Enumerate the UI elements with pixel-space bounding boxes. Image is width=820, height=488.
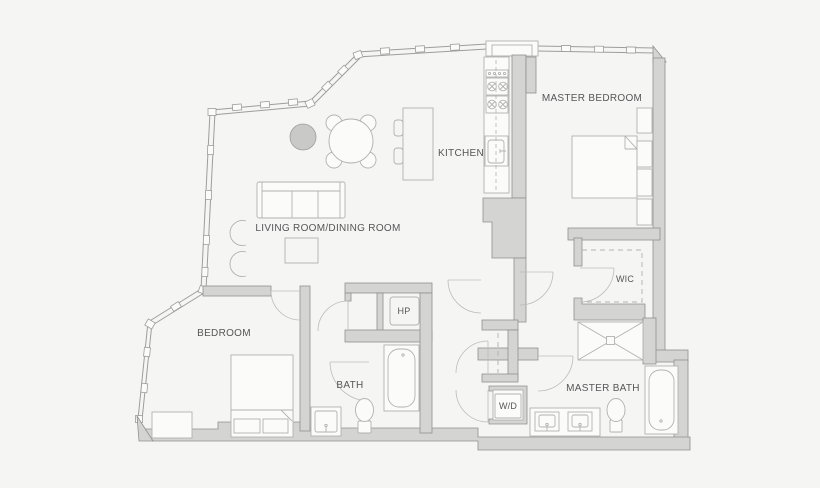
window-mullion [171, 302, 182, 312]
stool [394, 120, 403, 136]
nightstand [637, 199, 652, 225]
window-mullion [141, 383, 148, 393]
room-label-master-bath: MASTER BATH [566, 383, 640, 394]
room-label-kitchen: KITCHEN [438, 148, 484, 159]
coffee-table [285, 238, 318, 263]
room-label-bedroom: BEDROOM [197, 328, 251, 339]
wall-bedroom-top [203, 286, 271, 296]
master-bed [572, 136, 637, 198]
entry-recess [486, 41, 538, 56]
kitchen-fixtures [394, 57, 509, 193]
entry-door [486, 41, 538, 56]
shower [578, 322, 643, 360]
floor-plan: MASTER BEDROOM KITCHEN LIVING ROOM/DININ… [0, 0, 820, 488]
wall-linen-bottom [482, 374, 518, 382]
living-dining-furniture [230, 115, 376, 277]
window-mullion [380, 48, 389, 55]
wall-master-step [526, 57, 536, 93]
shower-drain [607, 337, 615, 345]
window-corner [208, 109, 216, 116]
wd-door-arc [456, 390, 488, 422]
master-bathtub [645, 366, 678, 434]
wall-closet-hp [377, 293, 383, 332]
doors [271, 268, 614, 422]
wall-bottom-left-corner [137, 416, 153, 441]
wall-wic-left [574, 238, 582, 266]
wall-wic-bottom [574, 298, 645, 320]
sofa [257, 182, 345, 218]
window-mullion [202, 267, 208, 276]
bathtub [384, 345, 419, 411]
window-mullion [594, 46, 603, 52]
bath-fixtures [311, 297, 419, 436]
hall-door-arc [448, 280, 481, 313]
window-mullion [450, 44, 459, 51]
wall-bath-hall [420, 293, 432, 433]
dining-table [329, 119, 373, 163]
armchair [230, 251, 246, 276]
wall-shower-right [643, 318, 656, 364]
toilet [356, 399, 374, 434]
nightstand [637, 108, 652, 133]
floor-plan-drawing: MASTER BEDROOM KITCHEN LIVING ROOM/DININ… [0, 0, 820, 488]
window-mullion [322, 81, 333, 92]
stool [394, 148, 403, 164]
room-label-master-bedroom: MASTER BEDROOM [542, 93, 642, 104]
kitchen-island [394, 108, 433, 180]
bed [231, 355, 293, 437]
armchair [230, 220, 246, 245]
master-toilet [607, 399, 625, 433]
window-mullion [144, 347, 151, 357]
wall-bedroom-bath [300, 286, 310, 431]
side-table [290, 124, 316, 150]
window-corner [145, 319, 155, 329]
window-mullion [338, 65, 349, 76]
double-vanity [530, 408, 600, 436]
wall-linen-top [482, 320, 518, 330]
wall-kitchen-master [512, 55, 526, 198]
window-mullion [561, 45, 570, 51]
room-label-wd: W/D [499, 401, 517, 411]
window-mullion [415, 46, 424, 53]
bedroom-door-arc [271, 291, 300, 320]
room-label-hp: HP [398, 306, 411, 316]
wall-hall-divider [514, 258, 526, 322]
wall-right [653, 58, 665, 352]
wall-closet-stub [345, 293, 351, 301]
window-mullion [260, 101, 269, 108]
window-mullion [626, 47, 635, 53]
window-mullion [288, 99, 297, 106]
hall-closet-door-arc [318, 301, 348, 331]
window-corner [305, 99, 315, 109]
window-mullion [205, 190, 211, 199]
wall-bottom [140, 422, 690, 450]
wall-linen-right [508, 330, 518, 378]
window-mullion [203, 235, 209, 244]
bath-vanity [311, 407, 341, 436]
window-mullion [207, 145, 213, 154]
wall-under-hp [345, 330, 432, 342]
headboard-cabinet [637, 169, 652, 196]
window-mullion [232, 104, 241, 111]
wall-kitchen-end [483, 198, 526, 258]
window-corner [353, 50, 363, 59]
room-label-living-dining: LIVING ROOM/DINING ROOM [255, 223, 400, 234]
wall-bath-top [345, 283, 432, 293]
headboard-cabinet [637, 141, 652, 167]
room-label-wic: WIC [616, 274, 634, 284]
master-bedroom-furniture [572, 108, 652, 225]
wic-door-arc [580, 268, 614, 302]
dresser [152, 412, 192, 438]
room-label-bath: BATH [336, 380, 363, 391]
